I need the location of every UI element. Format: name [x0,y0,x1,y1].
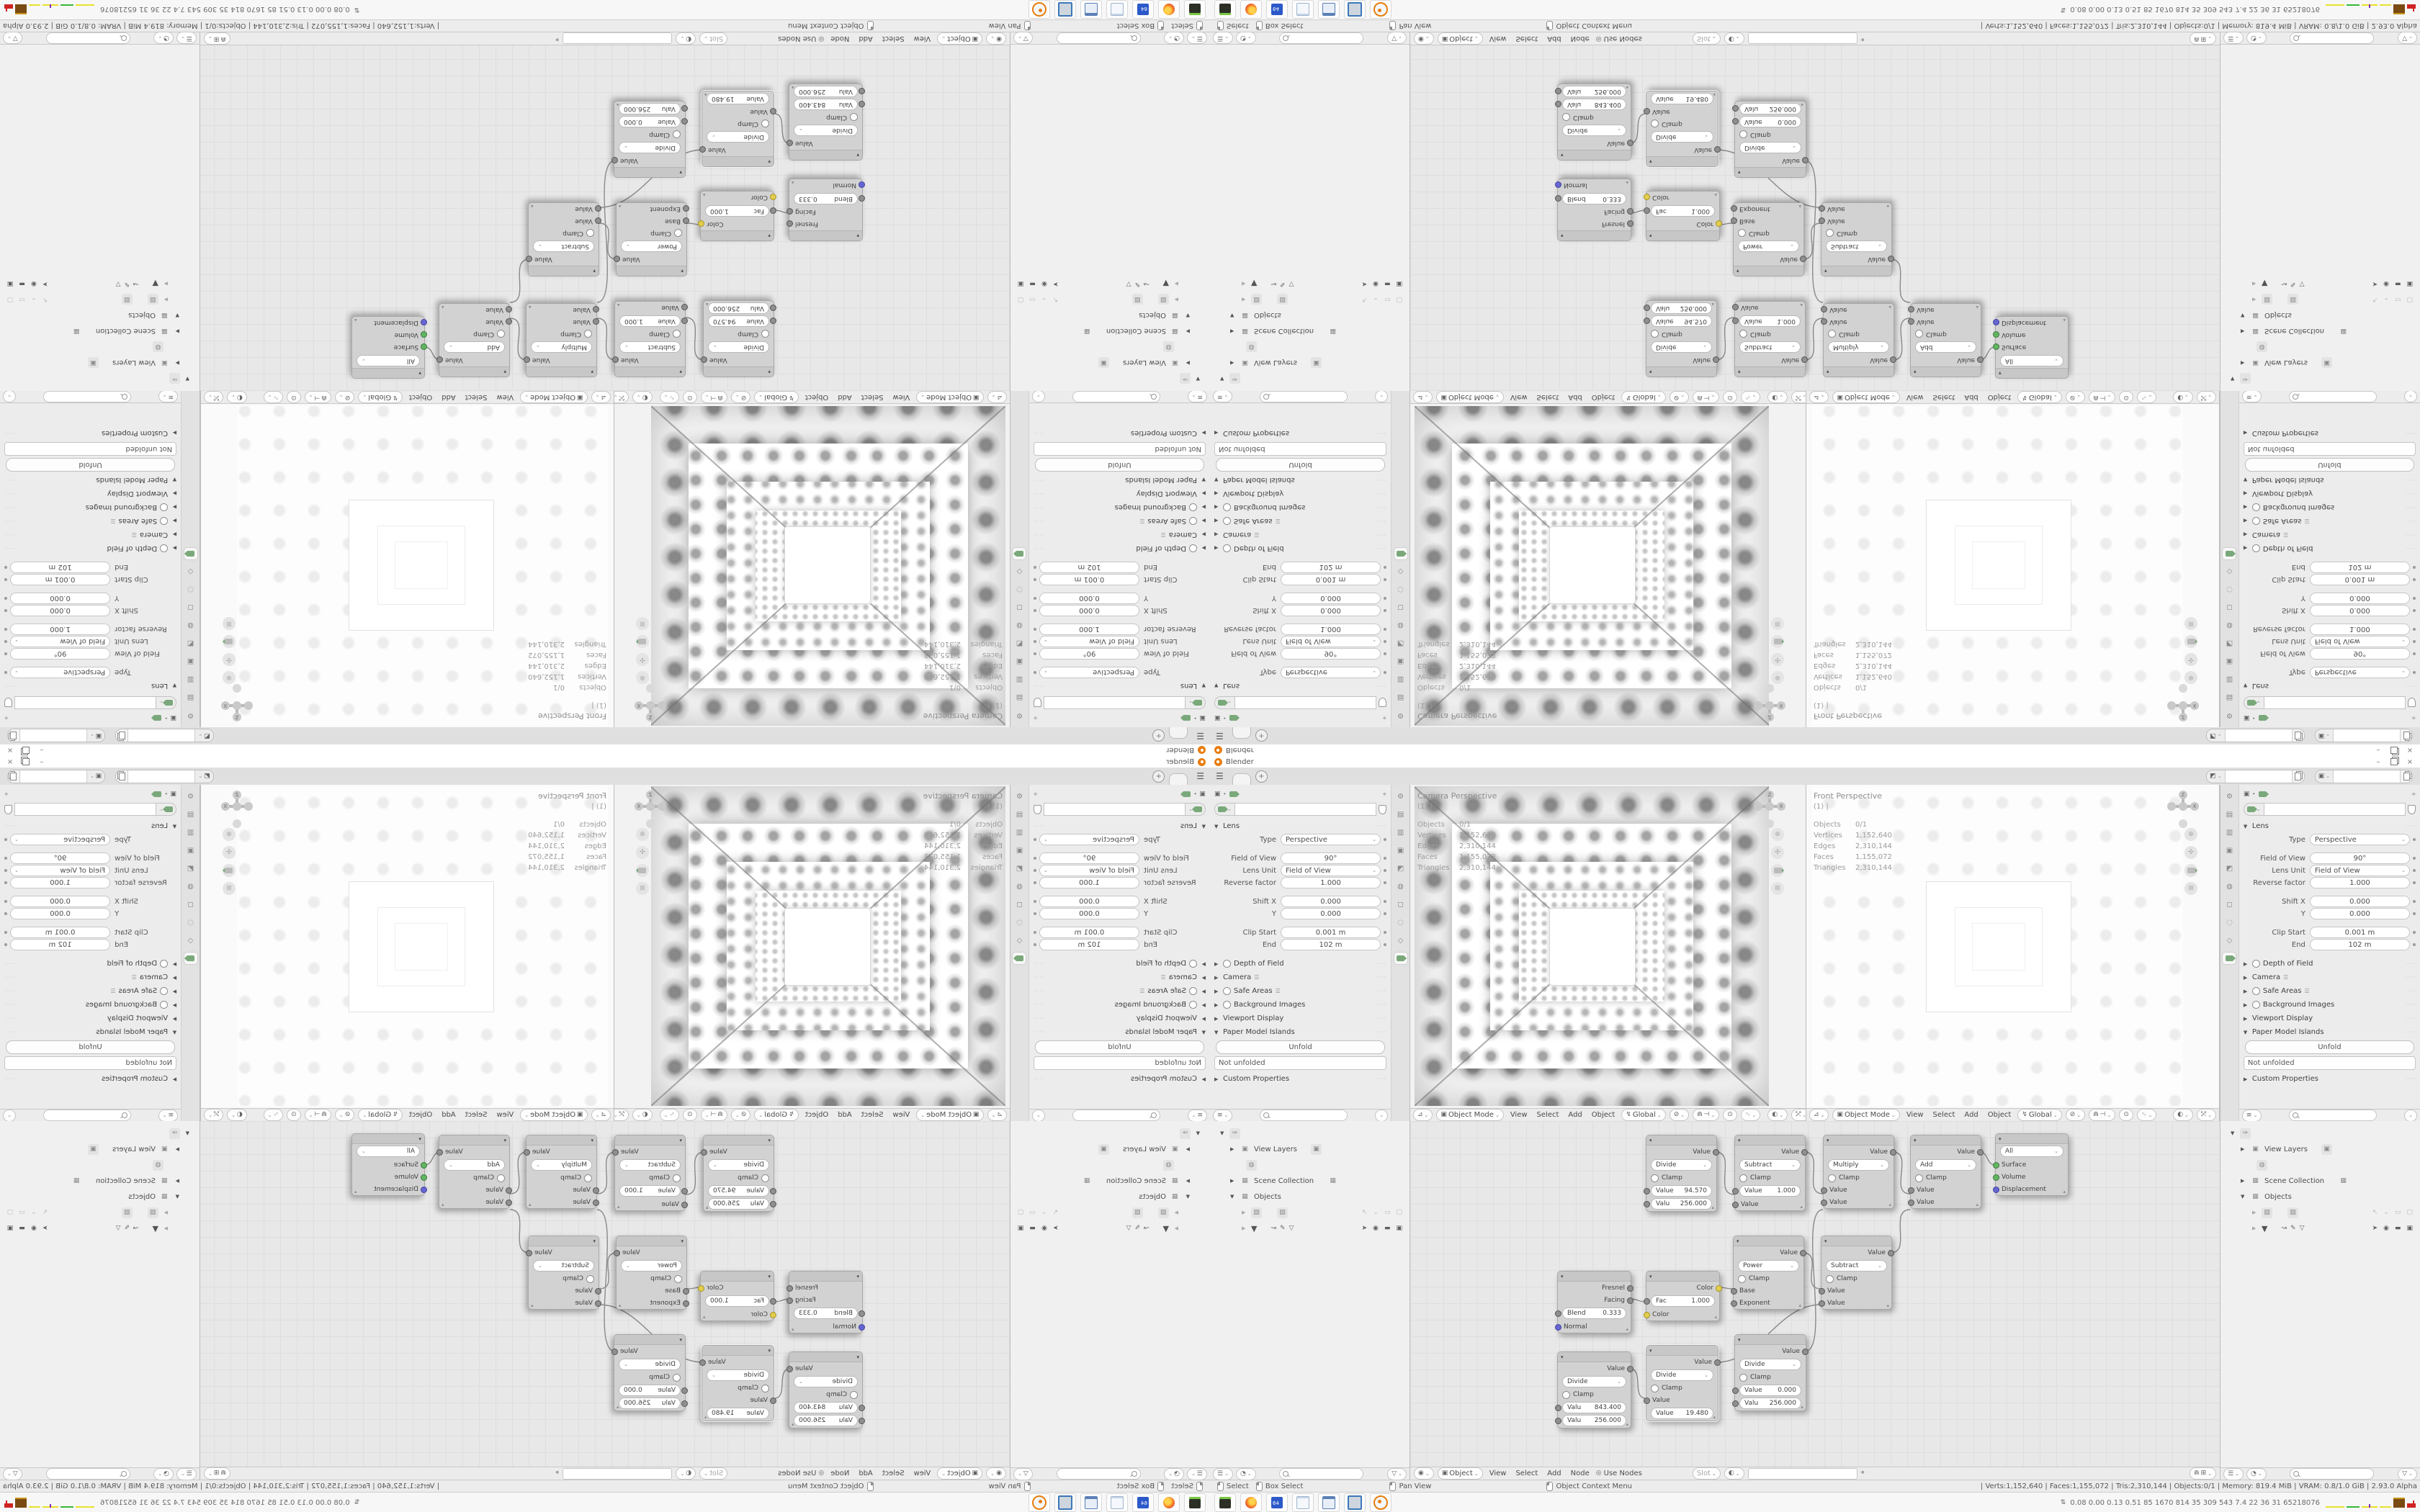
menu-add[interactable]: Add [856,35,875,42]
editor-type-button[interactable]: ⊿⌄ [591,1109,611,1121]
panel-custom-properties[interactable]: ▶Custom Properties···· [4,426,176,440]
not-unfolded-field[interactable]: Not unfolded [1214,1056,1386,1070]
scene-browse-button[interactable]: ◩⌄ [2207,770,2225,783]
panel-background-images[interactable]: ▶Background Images···· [4,998,176,1012]
render-toggle-icon[interactable]: ▢ [1396,1209,1402,1216]
operation-dropdown[interactable]: Divide⌄ [1739,142,1801,153]
render-toggle-icon[interactable]: ▢ [1018,1209,1024,1216]
app-screenshot-icon[interactable] [1344,0,1366,19]
zoom-icon[interactable]: ⊕ [1771,671,1784,684]
node-header[interactable]: ▾ [701,1272,774,1282]
editor-type-button[interactable]: ⊿⌄ [1413,391,1433,403]
value-output-socket[interactable] [526,1250,532,1256]
outliner-object-row-active[interactable]: ▶▼↝✎▽➤◉▬▣ [1015,276,1206,292]
operation-dropdown[interactable]: Subtract⌄ [619,341,681,353]
outliner-objects-row[interactable]: ▼▦Objects [2225,307,2416,323]
node-header[interactable]: ▾ [1735,1335,1806,1345]
pin-icon[interactable]: ⌖ [555,1470,559,1477]
snapping-controls[interactable]: ⋒⊣⌄ [2089,391,2115,403]
value-output-socket[interactable] [1801,1149,1808,1156]
menu-select[interactable]: Select [1534,393,1562,401]
not-unfolded-field[interactable]: Not unfolded [1034,1056,1206,1070]
shift-x-field[interactable]: 0.000 [2310,896,2410,907]
snapping-toggle[interactable]: ⋒⊞⌄ [2190,32,2216,45]
scene-name-field[interactable] [2226,730,2292,742]
gizmo-x-neg-axis[interactable] [2167,802,2176,811]
slot-dropdown[interactable]: Slot⌄ [699,1467,727,1480]
tab-world-icon[interactable]: ◍ [1394,881,1407,892]
gizmo-z-neg-axis[interactable] [646,819,655,828]
camera-view-icon[interactable] [1771,635,1784,648]
blend-field[interactable]: Blend0.333 [1562,1308,1626,1319]
outliner-world-row[interactable]: ◍ [2225,1157,2416,1173]
zoom-icon[interactable]: ⊕ [1771,828,1784,841]
operation-dropdown[interactable]: Divide⌄ [619,142,681,153]
animate-dot[interactable] [1034,652,1036,655]
value-input-socket[interactable] [595,1288,601,1295]
tab-tool-icon[interactable]: ⚙ [1394,710,1407,721]
preset-list-icon[interactable]: ☰ [2304,518,2309,524]
proportional-editing-toggle[interactable]: ⊙ [683,1109,697,1121]
properties-options-button[interactable]: ⌄ [1375,1110,1388,1122]
render-toggle-icon[interactable]: ▢ [2406,1209,2413,1216]
clamp-checkbox[interactable]: Clamp [529,1273,599,1284]
node-header[interactable]: ▾ [1558,150,1631,160]
value-input-socket[interactable] [1821,319,1827,325]
transform-orientation-dropdown[interactable]: ↯Global⌄ [1621,391,1665,403]
outliner-objects-row[interactable]: ▼▦Objects [1214,1189,1405,1205]
value-output-socket[interactable] [701,357,707,364]
camera-view-icon[interactable] [223,864,236,877]
type-dropdown[interactable]: Perspective⌄ [2310,834,2410,845]
gizmo-z-neg-axis[interactable] [1765,684,1774,693]
value-input-socket[interactable] [1732,1400,1739,1407]
panel-depth-of-field[interactable]: ▶Depth of Field···· [1034,541,1206,555]
viewport-toggle-icon[interactable]: ▬ [1384,280,1391,287]
navigation-gizmo[interactable]: Z X [635,690,666,721]
value-output-socket[interactable] [524,1149,530,1156]
background-images-toggle[interactable] [1223,1001,1231,1009]
node-header[interactable]: ▾ [1735,366,1805,377]
tab-view-layer-icon[interactable]: ▣ [2223,845,2236,856]
camera-view-icon[interactable] [223,635,236,648]
panel-safe-areas[interactable]: ▶Safe Areas☰···· [4,514,176,528]
proportional-editing-toggle[interactable]: ⊙ [287,1109,301,1121]
id-browse-button[interactable]: ⌄ [156,696,176,709]
outliner-display-mode-dropdown[interactable]: ☰⌄ [1187,1468,1207,1480]
panel-safe-areas[interactable]: ▶Safe Areas☰···· [2244,514,2416,528]
animate-dot[interactable] [1384,597,1386,600]
hide-eye-icon[interactable]: ◉ [2383,280,2389,287]
editor-type-button[interactable]: ◉⌄ [986,32,1006,45]
scene-selector[interactable]: ◩⌄ [2206,770,2304,783]
outliner-mode-dropdown[interactable]: ◔⌄ [153,1468,174,1480]
tab-object-icon[interactable]: ◻ [1394,602,1407,613]
background-images-toggle[interactable] [1189,1001,1197,1009]
mode-dropdown[interactable]: ▣Object Mode⌄ [916,1109,983,1121]
outliner-display-mode-dropdown[interactable]: ☰⌄ [1213,32,1233,45]
animate-dot[interactable] [1034,671,1036,674]
value-field[interactable]: Value94.570 [708,1185,769,1197]
outliner-object-row-active[interactable]: ▶▼↝✎▽➤◉▬▣ [2225,276,2416,292]
outliner-search-input[interactable] [2290,1468,2374,1480]
panel-depth-of-field[interactable]: ▶Depth of Field···· [1214,957,1386,971]
math-node-add[interactable]: ▾ Value Add⌄ Clamp Value Value ▴ [439,303,510,377]
view-layer-button-icon[interactable]: ▣ [2321,1144,2332,1155]
animate-dot[interactable] [4,628,7,631]
math-node-add[interactable]: ▾ Value Add⌄ Clamp Value Value ▴ [1910,1135,1981,1209]
menu-select[interactable]: Select [462,393,490,401]
object-icon[interactable]: ▣ [171,715,177,721]
gizmo-x-axis[interactable]: X [1777,701,1785,710]
pan-hand-icon[interactable]: ✣ [1771,653,1784,666]
panel-background-images[interactable]: ▶Background Images···· [4,500,176,514]
animate-dot[interactable] [1034,597,1036,600]
operation-dropdown[interactable]: Subtract⌄ [533,240,594,252]
render-toggle-icon[interactable]: ▢ [1396,296,1402,303]
animate-dot[interactable] [1034,912,1036,915]
view-layer-browse-button[interactable]: ▣⌄ [2316,770,2334,783]
clamp-checkbox[interactable]: Clamp [789,112,862,123]
tab-constraints-icon[interactable]: ◇ [184,935,197,946]
app-notepad-icon[interactable] [1292,0,1314,19]
animate-dot[interactable] [2413,597,2416,600]
clamp-checkbox[interactable]: Clamp [529,228,599,239]
fov-field[interactable]: 90° [10,648,110,660]
viewport-front[interactable]: Front Perspective (1) | Objects0/1 Verti… [1806,785,2220,1121]
tab-scene-icon[interactable]: ◩ [184,863,197,874]
transform-orientation-dropdown[interactable]: ↯Global⌄ [1621,1109,1665,1121]
value-field[interactable]: Value1.000 [1739,315,1801,327]
value-input-socket[interactable] [1555,101,1561,107]
viewport-toggle-icon[interactable]: ▬ [19,280,26,287]
cursor-icon[interactable]: ↖ [1362,296,1368,303]
reverse-factor-field[interactable]: 1.000 [1039,877,1139,888]
node-header[interactable]: ▾ [1735,1135,1805,1146]
layer-weight-node[interactable]: ▾ Fresnel Facing Blend0.333 Normal ▴ [1557,1271,1631,1333]
tab-view-layer-icon[interactable]: ▣ [1013,845,1026,856]
clamp-checkbox[interactable]: Clamp [1735,328,1805,340]
overlays-dropdown[interactable]: ⤱⌄ [614,1109,629,1121]
value-output-socket[interactable] [699,147,706,153]
cursor-icon[interactable]: ➤ [42,1225,48,1232]
snapping-controls[interactable]: ⋒⊣⌄ [1693,1109,1719,1121]
panel-safe-areas[interactable]: ▶Safe Areas☰···· [1034,514,1206,528]
outliner-search-input[interactable] [46,32,130,44]
safe-areas-toggle[interactable] [1223,987,1231,995]
shift-y-field[interactable]: 0.000 [1281,593,1381,604]
node-header[interactable]: ▾ [439,366,509,377]
operation-dropdown[interactable]: Subtract⌄ [533,1260,594,1272]
shift-y-field[interactable]: 0.000 [2310,593,2410,604]
overlays-dropdown[interactable]: ⤱⌄ [2197,1109,2216,1121]
tab-output-icon[interactable]: ▥ [1013,674,1026,685]
tab-constraints-icon[interactable]: ◇ [2223,566,2236,577]
visibility-toggles[interactable]: ➤◉▬▣ [1018,1225,1058,1232]
outliner-root-row[interactable]: ▼✑ [2225,371,2416,387]
view-layer-selector[interactable]: ▣⌄ [7,729,105,743]
hide-eye-icon[interactable]: ◉ [1041,1225,1047,1232]
tab-tool-icon[interactable]: ⚙ [1394,791,1407,802]
outliner-view-layers-row[interactable]: ▶▣View Layers▣ [1015,1141,1206,1157]
outliner-object-row-hidden[interactable]: ▶▧▨↖⌄▭▢ [4,292,195,307]
animate-dot[interactable] [4,597,7,600]
menu-add[interactable]: Add [1565,393,1585,401]
app-notepad-icon[interactable] [1106,1493,1128,1512]
gizmo-x-neg-axis[interactable] [244,802,253,811]
navigation-gizmo[interactable]: Z X [221,690,253,721]
math-node-divide[interactable]: ▾ Value Divide⌄ Clamp Value0.000 Valu256… [1734,101,1806,178]
perspective-toggle-icon[interactable]: ⊞ [636,882,649,895]
node-header[interactable]: ▾ [704,1135,774,1146]
tab-object-icon[interactable]: ◻ [1394,899,1407,910]
animate-dot[interactable] [1034,578,1036,581]
math-node-power[interactable]: ▾ Value Power⌄ Clamp Base Exponent ▴ [616,1236,687,1310]
operation-dropdown[interactable]: Divide⌄ [1651,1369,1713,1381]
type-dropdown[interactable]: Perspective⌄ [1039,667,1139,678]
pivot-point-dropdown[interactable]: ⊘⌄ [335,1109,354,1121]
close-button[interactable]: × [6,757,14,766]
menu-hamburger-icon[interactable]: ☰ [1216,731,1224,741]
clamp-checkbox[interactable]: Clamp [1821,228,1891,239]
gizmo-z-axis[interactable]: Z [233,791,241,799]
scene-browse-button[interactable]: ◩⌄ [194,770,212,783]
unfold-button[interactable]: Unfold [6,1040,175,1054]
clip-start-field[interactable]: 0.001 m [2310,574,2410,585]
navigation-gizmo[interactable]: Z X [221,791,253,822]
new-view-layer-button[interactable] [2400,770,2412,783]
value-output-socket[interactable] [436,357,443,364]
clamp-checkbox[interactable]: Clamp [1911,1172,1981,1184]
material-name-field[interactable] [563,33,672,45]
snapping-controls[interactable]: ⋒⊣⌄ [305,391,331,403]
outliner-object-row-active[interactable]: ▶▼↝✎▽➤◉▬▣ [2225,1220,2416,1236]
new-scene-button[interactable] [116,730,128,742]
operation-dropdown[interactable]: Divide⌄ [794,1376,858,1387]
value-input-socket[interactable] [859,1405,865,1411]
tab-render-icon[interactable]: ▤ [184,692,197,703]
add-workspace-button[interactable]: + [1255,770,1268,783]
outliner-root-row[interactable]: ▼✑ [1214,371,1405,387]
proportional-falloff-dropdown[interactable]: ∿⌄ [1741,1109,1760,1121]
clamp-checkbox[interactable]: Clamp [702,1382,774,1394]
fac-input-socket[interactable] [1644,1298,1650,1305]
animate-dot[interactable] [1384,671,1386,674]
outliner-objects-row[interactable]: ▼▦Objects [4,1189,195,1205]
operation-dropdown[interactable]: Multiply⌄ [1828,341,1889,353]
fresnel-output-socket[interactable] [786,221,793,228]
surface-input-socket[interactable] [1993,344,1999,351]
pan-hand-icon[interactable]: ✣ [636,653,649,666]
value-input-socket[interactable] [681,105,688,112]
tab-output-icon[interactable]: ▥ [184,674,197,685]
value-field[interactable]: Valu256.000 [708,1198,769,1210]
outliner-display-mode-dropdown[interactable]: ☰⌄ [1187,32,1207,45]
blend-input-socket[interactable] [1555,1310,1561,1317]
lens-unit-dropdown[interactable]: Field of View⌄ [10,865,110,876]
pin-icon[interactable]: ⌖ [4,714,9,722]
value-input-socket[interactable] [593,1187,599,1194]
camera-view-icon[interactable] [2184,635,2197,648]
menu-select[interactable]: Select [879,1470,907,1477]
id-browse-button[interactable]: ⌄ [1214,803,1234,816]
outliner-scene-collection-row[interactable]: ▶▦Scene Collection▦ [2225,1173,2416,1189]
visibility-toggles[interactable]: ↖⌄▭▢ [2372,296,2413,303]
tab-tool-icon[interactable]: ⚙ [1013,791,1026,802]
clamp-checkbox[interactable]: Clamp [1646,328,1716,340]
clip-end-field[interactable]: 102 m [2310,562,2410,573]
shift-y-field[interactable]: 0.000 [10,593,110,604]
viewport-toggle-icon[interactable]: ▭ [2395,296,2401,303]
panel-camera[interactable]: ▶Camera☰···· [1214,971,1386,984]
view-layer-button-icon[interactable]: ▣ [1311,358,1322,369]
animate-dot[interactable] [1034,609,1036,612]
operation-dropdown[interactable]: Power⌄ [621,1260,682,1272]
editor-type-button[interactable]: ≡⌄ [1213,391,1232,403]
tab-physics-icon[interactable]: ◌ [184,917,197,928]
tab-render-icon[interactable]: ▤ [2223,809,2236,820]
object-icon[interactable]: ▣ [171,791,177,798]
fake-user-shield-icon[interactable] [2408,698,2416,708]
value-field[interactable]: Value1.000 [619,1185,681,1197]
id-name-field[interactable] [2264,696,2406,709]
clamp-checkbox[interactable]: Clamp [1558,112,1631,123]
pin-icon[interactable]: ⌖ [1861,35,1865,42]
editor-type-button[interactable]: ≡⌄ [2242,1110,2262,1122]
mode-dropdown[interactable]: ▣Object Mode⌄ [520,391,587,403]
menu-add[interactable]: Add [1544,35,1564,42]
shift-x-field[interactable]: 0.000 [10,605,110,616]
menu-view[interactable]: View [1904,393,1927,401]
lens-unit-dropdown[interactable]: Field of View⌄ [1039,865,1139,876]
clamp-checkbox[interactable]: Clamp [1646,118,1718,130]
tab-physics-icon[interactable]: ◌ [1394,584,1407,595]
output-target-dropdown[interactable]: All⌄ [357,355,420,366]
scene-name-field[interactable] [2226,770,2292,783]
outliner-mode-dropdown[interactable]: ◔⌄ [1164,32,1184,45]
panel-viewport-display[interactable]: ▶Viewport Display···· [2244,487,2416,500]
fac-field[interactable]: Fac1.000 [1651,205,1715,217]
material-name-field[interactable] [1748,33,1857,45]
overlays-dropdown[interactable]: ⤱⌄ [204,391,223,403]
fresnel-output-socket[interactable] [786,1285,793,1292]
math-node-divide-selected[interactable]: ▾ Value Divide⌄ Clamp Value Value19.480 … [1646,1345,1718,1421]
menu-add[interactable]: Add [1961,1111,1981,1119]
animate-dot[interactable] [1384,857,1386,860]
tab-object-data-icon[interactable] [184,953,197,964]
panel-lens[interactable]: ▼Lens···· [1034,679,1206,693]
transform-orientation-dropdown[interactable]: ↯Global⌄ [754,1109,798,1121]
operation-dropdown[interactable]: Divide⌄ [1562,1376,1626,1387]
viewport-toggle-icon[interactable]: ▭ [1030,1209,1036,1216]
editor-type-button[interactable]: ⊿⌄ [591,391,611,403]
tab-output-icon[interactable]: ▥ [1013,827,1026,838]
transform-orientation-dropdown[interactable]: ↯Global⌄ [2017,391,2061,403]
mix-node[interactable]: ▾ Color Fac1.000 Color ▴ [1646,1271,1720,1321]
base-input-socket[interactable] [1731,218,1737,225]
app-screenshot-icon[interactable] [1344,1493,1366,1512]
viewport-toggle-icon[interactable]: ▭ [19,296,26,303]
visibility-toggles[interactable]: ↖⌄▭▢ [1018,296,1058,303]
safe-areas-toggle[interactable] [160,987,168,995]
math-node-divide[interactable]: ▾ Value Divide⌄ Clamp Valu843.400 Valu25… [1557,1351,1631,1428]
clamp-checkbox[interactable]: Clamp [1734,1273,1803,1284]
tab-scene-icon[interactable]: ◩ [1013,638,1026,649]
menu-select[interactable]: Select [1512,1470,1541,1477]
background-images-toggle[interactable] [1189,503,1197,511]
viewport-front[interactable]: Front Perspective (1) | Objects0/1 Verti… [200,391,614,727]
gizmo-z-neg-axis[interactable] [2179,684,2187,693]
panel-safe-areas[interactable]: ▶Safe Areas☰···· [1214,984,1386,998]
operation-dropdown[interactable]: Subtract⌄ [1739,341,1801,353]
camera-view-icon[interactable] [1771,864,1784,877]
outliner-object-row-hidden[interactable]: ▶▧▨↖⌄▭▢ [4,1205,195,1220]
dof-toggle[interactable] [1189,960,1197,968]
clip-start-field[interactable]: 0.001 m [1039,574,1139,585]
outliner-object-row-active[interactable]: ▶▼↝✎▽➤◉▬▣ [1214,1220,1405,1236]
pivot-point-dropdown[interactable]: ⊘⌄ [1670,391,1689,403]
shading-mode-dropdown[interactable]: ◐⌄ [632,391,653,403]
fov-field[interactable]: 90° [2310,648,2410,660]
panel-camera[interactable]: ▶Camera☰···· [1034,971,1206,984]
animate-dot[interactable] [2413,609,2416,612]
menu-select[interactable]: Select [1512,35,1541,42]
safe-areas-toggle[interactable] [2252,517,2260,525]
viewport-toggle-icon[interactable]: ▭ [1030,296,1036,303]
restore-button[interactable] [22,757,30,766]
animate-dot[interactable] [2413,900,2416,903]
view-layer-name-field[interactable] [2334,730,2400,742]
color-output-socket[interactable] [1716,1285,1722,1292]
clip-end-field[interactable]: 102 m [2310,939,2410,950]
menu-hamburger-icon[interactable]: ☰ [1216,771,1224,781]
value-field[interactable]: Valu256.000 [1651,1198,1712,1210]
panel-paper-model-islands[interactable]: ▼Paper Model Islands···· [2244,473,2416,487]
menu-view[interactable]: View [1507,1111,1531,1119]
viewport-camera[interactable]: Camera Perspective (1) | Objects0/1 Vert… [614,785,1010,1121]
value-input-socket[interactable] [1555,1405,1561,1411]
value-input-socket[interactable] [1732,118,1739,125]
operation-dropdown[interactable]: Multiply⌄ [531,341,592,353]
cursor-icon[interactable]: ➤ [1053,1225,1059,1232]
clamp-checkbox[interactable]: Clamp [1911,328,1981,340]
visibility-toggles[interactable]: ➤◉▬▣ [2372,1225,2413,1232]
snapping-controls[interactable]: ⋒⊣⌄ [305,1109,331,1121]
menu-view[interactable]: View [911,35,934,42]
clamp-checkbox[interactable]: Clamp [1824,328,1894,340]
animate-dot[interactable] [2413,912,2416,915]
reverse-factor-field[interactable]: 1.000 [10,624,110,635]
hide-eye-icon[interactable]: ◉ [31,1225,37,1232]
shading-mode-dropdown[interactable]: ◐⌄ [227,1109,247,1121]
tab-constraints-icon[interactable]: ◇ [184,566,197,577]
value-input-socket[interactable] [1732,1387,1739,1394]
properties-search-input[interactable] [1260,391,1348,402]
operation-dropdown[interactable]: Divide⌄ [1651,341,1712,353]
animate-dot[interactable] [1384,943,1386,946]
visibility-toggles[interactable]: ➤◉▬▣ [2372,280,2413,287]
properties-options-button[interactable]: ⌄ [2404,1110,2417,1122]
scene-selector[interactable]: ◩⌄ [115,770,213,783]
node-header[interactable]: ▾ [614,167,685,177]
viewport-toggle-icon[interactable]: ▬ [2395,1225,2401,1232]
panel-depth-of-field[interactable]: ▶Depth of Field···· [1214,541,1386,555]
panel-custom-properties[interactable]: ▶Custom Properties···· [4,1072,176,1086]
menu-object[interactable]: Object [1589,1111,1618,1119]
tab-world-icon[interactable]: ◍ [1394,620,1407,631]
clamp-checkbox[interactable]: Clamp [439,1172,509,1184]
outliner-mode-dropdown[interactable]: ◔⌄ [1164,1468,1184,1480]
